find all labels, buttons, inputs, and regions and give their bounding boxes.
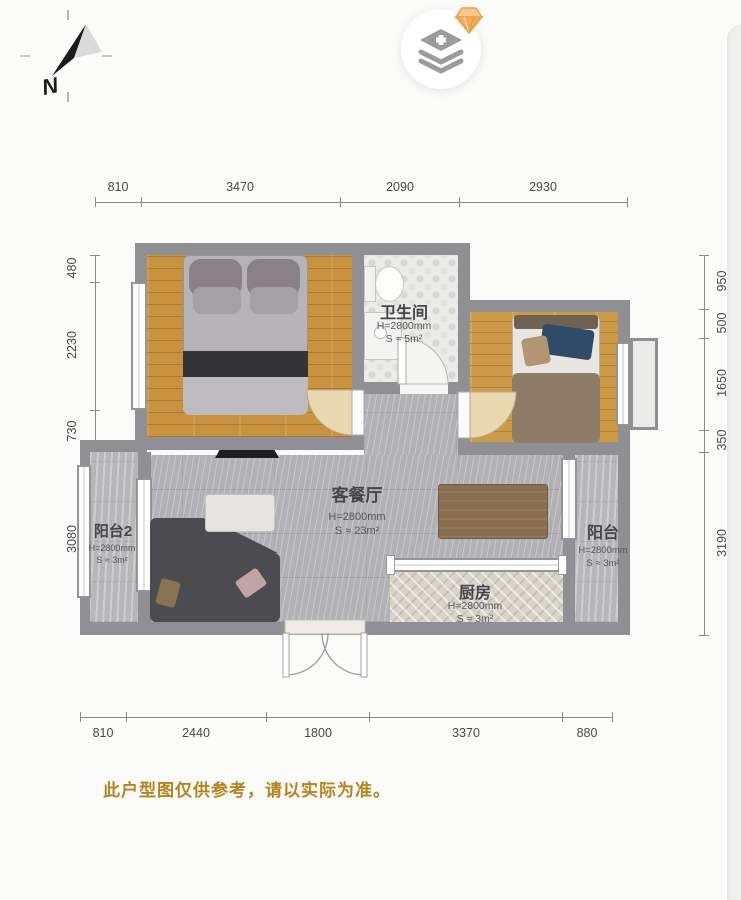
- bay-window: [630, 338, 658, 430]
- room-height-balcony: H=2800mm: [569, 545, 637, 556]
- coffee-table: [205, 494, 275, 532]
- bedroom1-window: [131, 282, 147, 410]
- room-label-living: 客餐厅: [307, 481, 407, 506]
- north-compass[interactable]: N: [18, 8, 114, 104]
- wall-bathroom-bottom: [352, 382, 470, 394]
- entry-door-leaf-right: [361, 633, 367, 677]
- dim-label: 3470: [208, 180, 272, 194]
- dim-label: 500: [715, 291, 729, 355]
- dim-label: 2930: [511, 180, 575, 194]
- wall-top: [135, 243, 470, 255]
- balcony-partition-window: [561, 458, 577, 540]
- dim-label: 1650: [715, 351, 729, 415]
- wall-balcony2-top: [80, 440, 147, 452]
- room-area-balcony: S ≈ 3m²: [569, 558, 637, 569]
- room-label-balcony: 阳台: [577, 519, 629, 543]
- bed-1-foot: [183, 377, 308, 415]
- wall-bedroom1-bathroom: [352, 243, 364, 450]
- wall-bedroom2-top: [458, 300, 630, 312]
- dim-label: 880: [555, 726, 619, 740]
- wall-bedroom2-bottom: [458, 442, 630, 455]
- dim-label: 810: [71, 726, 135, 740]
- wall-bedroom1-bottom: [135, 437, 364, 450]
- bedroom2-window: [616, 342, 630, 426]
- entry-door-leaf-left: [283, 633, 289, 677]
- room-label-balcony2: 阳台2: [84, 520, 142, 541]
- dim-line: [704, 255, 705, 635]
- bed-1-cushion-right: [250, 287, 298, 314]
- dim-line: [95, 202, 627, 203]
- bed-2-pillow: [521, 335, 551, 367]
- tv: [215, 450, 279, 458]
- toilet-bowl: [375, 266, 404, 302]
- room-height-balcony2: H=2800mm: [82, 543, 142, 553]
- dim-label: 2230: [65, 313, 79, 377]
- gem-badge-icon: [453, 6, 485, 36]
- dim-label: 480: [65, 236, 79, 300]
- kitchen-sliding-door: [390, 558, 563, 572]
- dining-table: [438, 484, 548, 539]
- disclaimer-text: 此户型图仅供参考，请以实际为准。: [103, 776, 391, 801]
- dim-label: 2440: [164, 726, 228, 740]
- dim-label: 2090: [368, 180, 432, 194]
- room-area-balcony2: S ≈ 3m²: [82, 555, 142, 565]
- bed-1-cushion-left: [193, 287, 241, 314]
- room-area-living: S ≈ 23m²: [307, 525, 407, 537]
- dim-label: 1800: [286, 726, 350, 740]
- hallway-floor: [364, 394, 458, 457]
- dim-label: 350: [715, 408, 729, 472]
- kitchen-door-jamb-right: [558, 555, 567, 575]
- floorplan-page: { "compass": { "north_label": "N" }, "to…: [0, 0, 741, 900]
- kitchen-door-jamb-left: [386, 555, 395, 575]
- dim-label: 3370: [434, 726, 498, 740]
- scroll-edge-panel: [727, 25, 741, 900]
- wall-bathroom-bedroom2: [458, 243, 470, 455]
- bed-2-blanket: [512, 373, 600, 443]
- wall-bottom: [80, 622, 630, 635]
- compass-graphic: N: [18, 8, 114, 104]
- room-height-living: H=2800mm: [307, 511, 407, 523]
- entry-door-arc-left: [286, 633, 328, 675]
- compass-north-label: N: [40, 72, 62, 100]
- entry-door-arc-right: [322, 633, 364, 675]
- room-area-kitchen: S ≈ 3m²: [430, 613, 520, 625]
- room-height-bathroom: H=2800mm: [364, 320, 444, 332]
- dim-label: 3190: [715, 511, 729, 575]
- room-height-kitchen: H=2800mm: [430, 600, 520, 612]
- room-area-bathroom: S ≈ 5m²: [364, 333, 444, 345]
- dim-label: 810: [86, 180, 150, 194]
- bed-1-runner: [183, 351, 308, 377]
- dim-label: 730: [65, 399, 79, 463]
- dim-line: [80, 717, 612, 718]
